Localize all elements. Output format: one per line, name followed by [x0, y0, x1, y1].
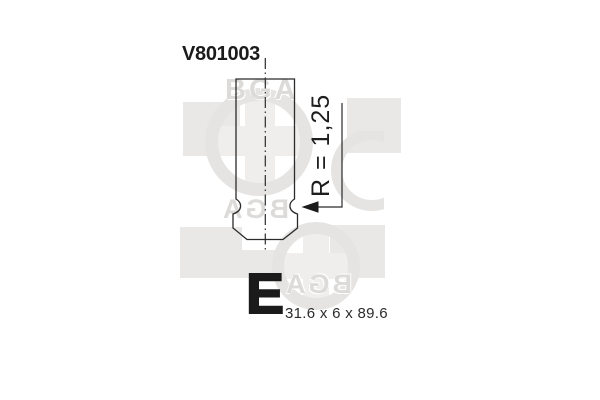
catalog-image: BGA BGA BGA V801003 R = 1,25 E 31.6 x 6 …	[0, 0, 600, 400]
radius-dimension-arrow-icon	[302, 201, 319, 212]
valve-type-marker-label: E	[246, 266, 284, 323]
valve-technical-drawing	[0, 0, 600, 400]
valve-dimensions-label: 31.6 x 6 x 89.6	[285, 306, 388, 321]
radius-dimension-label: R = 1,25	[307, 94, 336, 197]
part-number-label: V801003	[182, 44, 260, 64]
